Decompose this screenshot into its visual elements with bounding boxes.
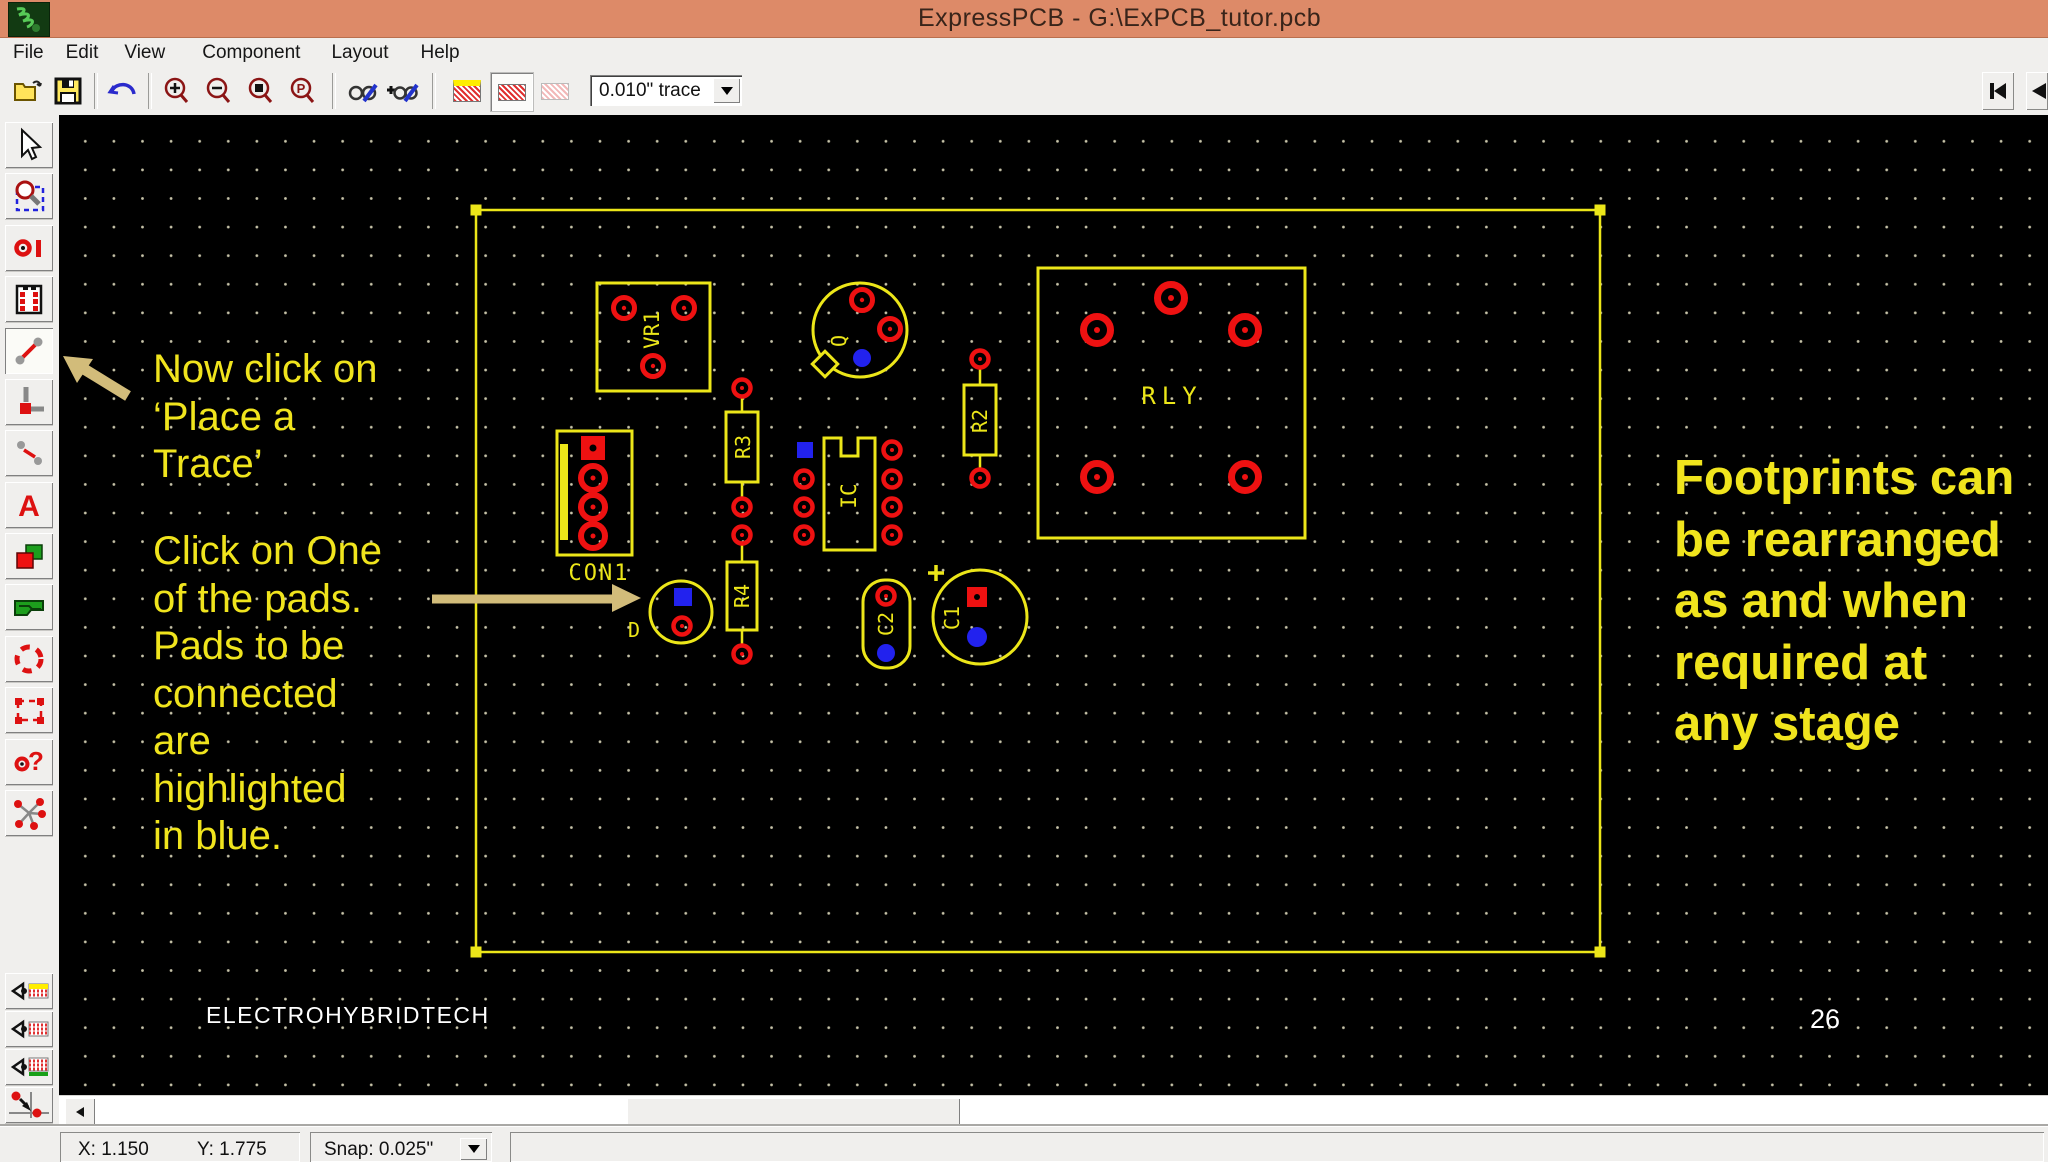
- status-bar: X: 1.150 Y: 1.775 Snap: 0.025": [0, 1126, 2048, 1153]
- pad[interactable]: [884, 499, 901, 516]
- layer-top-copper-toggle[interactable]: [5, 1011, 53, 1047]
- scroll-left-icon: [75, 1106, 85, 1118]
- menu-view[interactable]: View: [124, 42, 165, 64]
- component-add-button[interactable]: [384, 72, 420, 110]
- component-c1[interactable]: C1: [928, 565, 1027, 664]
- open-icon: [13, 78, 43, 104]
- board-corner-handle[interactable]: [1595, 205, 1606, 216]
- zoom-select-tool[interactable]: [5, 173, 53, 219]
- zoom-in-icon: [161, 76, 191, 106]
- pad[interactable]: [581, 466, 605, 490]
- pad[interactable]: [878, 588, 895, 605]
- select-icon: [9, 125, 49, 165]
- pad[interactable]: [614, 298, 635, 319]
- snap-panel[interactable]: Snap: 0.025": [310, 1132, 492, 1162]
- pad-highlighted[interactable]: [853, 349, 871, 367]
- first-page-icon: [1987, 81, 2009, 101]
- layer-bottom-copper-toggle[interactable]: [5, 1049, 53, 1085]
- zoom-previous-button[interactable]: P: [284, 72, 320, 110]
- pad-icon: [9, 228, 49, 268]
- pad[interactable]: [880, 319, 901, 340]
- annotation-click-pads: Click on One of the pads. Pads to be con…: [153, 528, 382, 861]
- snap-dropdown-arrow[interactable]: [460, 1138, 487, 1160]
- circle-tool[interactable]: [5, 636, 53, 682]
- board-corner-handle[interactable]: [1595, 947, 1606, 958]
- ratsnest-icon: [9, 793, 49, 833]
- app-logo-icon: [8, 2, 50, 37]
- component-q[interactable]: Q: [812, 283, 907, 377]
- pad[interactable]: [734, 646, 751, 663]
- place-trace-tool[interactable]: [5, 328, 53, 374]
- pad[interactable]: [581, 524, 605, 548]
- pad[interactable]: [972, 351, 989, 368]
- undo-icon: [106, 78, 138, 104]
- ratsnest-tool[interactable]: [5, 790, 53, 836]
- layer-top-copper-swatch: [498, 84, 526, 101]
- zoom-out-button[interactable]: [200, 72, 236, 110]
- save-icon: [54, 77, 82, 105]
- component-vr1[interactable]: VR1: [597, 283, 710, 391]
- annotation-place-trace: Now click on ‘Place a Trace’: [153, 346, 378, 489]
- component-label-r4: R4: [730, 584, 754, 608]
- component-icon: [9, 279, 49, 319]
- rectangle-tool[interactable]: [5, 533, 53, 579]
- title-bar: ExpressPCB - G:\ExPCB_tutor.pcb: [0, 0, 2048, 38]
- previous-page-icon: [2026, 81, 2048, 101]
- place-segment-tool[interactable]: [5, 430, 53, 476]
- layer-bottom-copper-swatch: [541, 83, 569, 100]
- pad[interactable]: [581, 495, 605, 519]
- pad[interactable]: [884, 442, 901, 459]
- menu-layout[interactable]: Layout: [331, 42, 388, 64]
- zoom-out-icon: [203, 76, 233, 106]
- component-label-vr1: VR1: [640, 311, 664, 349]
- component-rly[interactable]: RLY: [1038, 268, 1305, 538]
- pad[interactable]: [972, 470, 989, 487]
- origin-snap-tool[interactable]: [5, 1087, 53, 1123]
- component-label-q: Q: [827, 335, 851, 347]
- pad-info-icon: ?: [9, 742, 49, 782]
- pad[interactable]: [734, 380, 751, 397]
- page-number: 26: [1810, 1004, 1840, 1035]
- component-r3[interactable]: R3: [726, 380, 758, 516]
- pad[interactable]: [1158, 285, 1185, 312]
- pad[interactable]: [1084, 317, 1111, 344]
- layer-silkscreen-toggle[interactable]: [5, 973, 53, 1009]
- menu-help[interactable]: Help: [421, 42, 460, 64]
- trace-width-dropdown[interactable]: 0.010" trace: [590, 75, 742, 106]
- place-trace-icon: [9, 331, 49, 371]
- component-label-c1: C1: [940, 606, 964, 630]
- text-tool[interactable]: A: [5, 482, 53, 528]
- snap-value: Snap: 0.025": [324, 1139, 433, 1161]
- zoom-select-icon: [9, 176, 49, 216]
- trace-width-value: 0.010" trace: [590, 80, 713, 102]
- save-button[interactable]: [50, 72, 86, 110]
- layer-silkscreen-button[interactable]: [446, 72, 488, 110]
- power-plane-tool[interactable]: [5, 584, 53, 630]
- pad[interactable]: [796, 499, 813, 516]
- component-label-con1: CON1: [569, 561, 630, 586]
- status-message-panel: [510, 1132, 2044, 1162]
- pcb-canvas[interactable]: VR1 Q RLY R2: [59, 115, 2048, 1095]
- zoom-previous-icon: P: [287, 76, 317, 106]
- pad-info-tool[interactable]: ?: [5, 739, 53, 785]
- component-r4[interactable]: R4: [727, 527, 757, 663]
- pad[interactable]: [674, 618, 691, 635]
- pad[interactable]: [734, 527, 751, 544]
- menu-file[interactable]: File: [13, 42, 44, 64]
- svg-text:A: A: [18, 490, 40, 523]
- svg-text:?: ?: [28, 746, 44, 776]
- component-d[interactable]: D: [628, 581, 712, 643]
- layer-top-copper-icon: [7, 1015, 51, 1043]
- tool-palette: A ?: [0, 115, 61, 1126]
- select-tool[interactable]: [5, 122, 53, 168]
- toolbar: P 0.010" trace: [0, 68, 2048, 116]
- component-r2[interactable]: R2: [964, 351, 996, 487]
- layer-bottom-copper-button[interactable]: [534, 72, 576, 110]
- menu-bar: File Edit View Component Layout Help: [0, 38, 2048, 68]
- pad[interactable]: [674, 298, 695, 319]
- annotation-arrow-to-trace-tool: [63, 356, 128, 396]
- menu-component[interactable]: Component: [202, 42, 300, 64]
- pad[interactable]: [796, 471, 813, 488]
- component-manager-icon: [346, 77, 378, 105]
- scrollbar-thumb[interactable]: [627, 1098, 960, 1125]
- component-con1[interactable]: CON1: [557, 431, 632, 586]
- component-label-rly: RLY: [1141, 382, 1202, 410]
- annotation-arrow-to-pad: [432, 584, 641, 612]
- pad-tool[interactable]: [5, 225, 53, 271]
- component-label-r3: R3: [731, 435, 755, 459]
- pad[interactable]: [1084, 464, 1111, 491]
- first-page-button[interactable]: [1982, 72, 2014, 110]
- undo-button[interactable]: [104, 72, 140, 110]
- pad-highlighted[interactable]: [967, 627, 987, 647]
- component-label-c2: C2: [874, 612, 898, 636]
- board-corner-handle[interactable]: [471, 947, 482, 958]
- component-label-ic: IC: [837, 483, 861, 508]
- circle-icon: [9, 639, 49, 679]
- previous-page-button[interactable]: [2026, 72, 2048, 110]
- component-manager-button[interactable]: [344, 72, 380, 110]
- zoom-board-button[interactable]: [242, 72, 278, 110]
- group-select-icon: [9, 690, 49, 730]
- menu-edit[interactable]: Edit: [66, 42, 99, 64]
- component-add-icon: [385, 77, 419, 105]
- origin-snap-icon: [7, 1090, 51, 1120]
- scroll-left-button[interactable]: [65, 1098, 95, 1125]
- zoom-in-button[interactable]: [158, 72, 194, 110]
- pad[interactable]: [1232, 317, 1259, 344]
- component-label-d: D: [628, 618, 640, 642]
- cursor-position-panel: X: 1.150 Y: 1.775: [60, 1132, 300, 1162]
- layer-top-copper-button[interactable]: [490, 72, 534, 112]
- place-corner-icon: [9, 382, 49, 422]
- pad-highlighted[interactable]: [674, 588, 692, 606]
- pad-highlighted[interactable]: [797, 442, 813, 458]
- layer-bottom-copper-icon: [7, 1053, 51, 1081]
- cursor-y-value: Y: 1.775: [197, 1139, 267, 1161]
- component-ic[interactable]: IC: [796, 438, 901, 550]
- rectangle-icon: [9, 536, 49, 576]
- component-tool[interactable]: [5, 276, 53, 322]
- window-title: ExpressPCB - G:\ExPCB_tutor.pcb: [918, 4, 1321, 33]
- place-segment-icon: [9, 433, 49, 473]
- group-select-tool[interactable]: [5, 687, 53, 733]
- pad[interactable]: [884, 527, 901, 544]
- annotation-footprints: Footprints can be rearranged as and when…: [1674, 448, 2014, 756]
- layer-silkscreen-icon: [7, 977, 51, 1005]
- pad[interactable]: [884, 471, 901, 488]
- component-c2[interactable]: C2: [863, 580, 910, 668]
- pad[interactable]: [852, 290, 873, 311]
- watermark-text: ELECTROHYBRIDTECH: [206, 1002, 490, 1029]
- pad[interactable]: [734, 499, 751, 516]
- pad-highlighted[interactable]: [877, 644, 895, 662]
- place-corner-tool[interactable]: [5, 379, 53, 425]
- pad[interactable]: [643, 356, 664, 377]
- pad[interactable]: [796, 527, 813, 544]
- svg-text:P: P: [297, 81, 306, 96]
- zoom-board-icon: [245, 76, 275, 106]
- component-label-r2: R2: [968, 409, 992, 433]
- dropdown-arrow-icon[interactable]: [713, 78, 740, 103]
- layer-silkscreen-swatch: [453, 80, 481, 102]
- open-button[interactable]: [10, 72, 46, 110]
- text-icon: A: [9, 485, 49, 525]
- plane-icon: [9, 587, 49, 627]
- horizontal-scrollbar[interactable]: [59, 1095, 2048, 1127]
- pad[interactable]: [1232, 464, 1259, 491]
- board-corner-handle[interactable]: [471, 205, 482, 216]
- cursor-x-value: X: 1.150: [78, 1139, 149, 1161]
